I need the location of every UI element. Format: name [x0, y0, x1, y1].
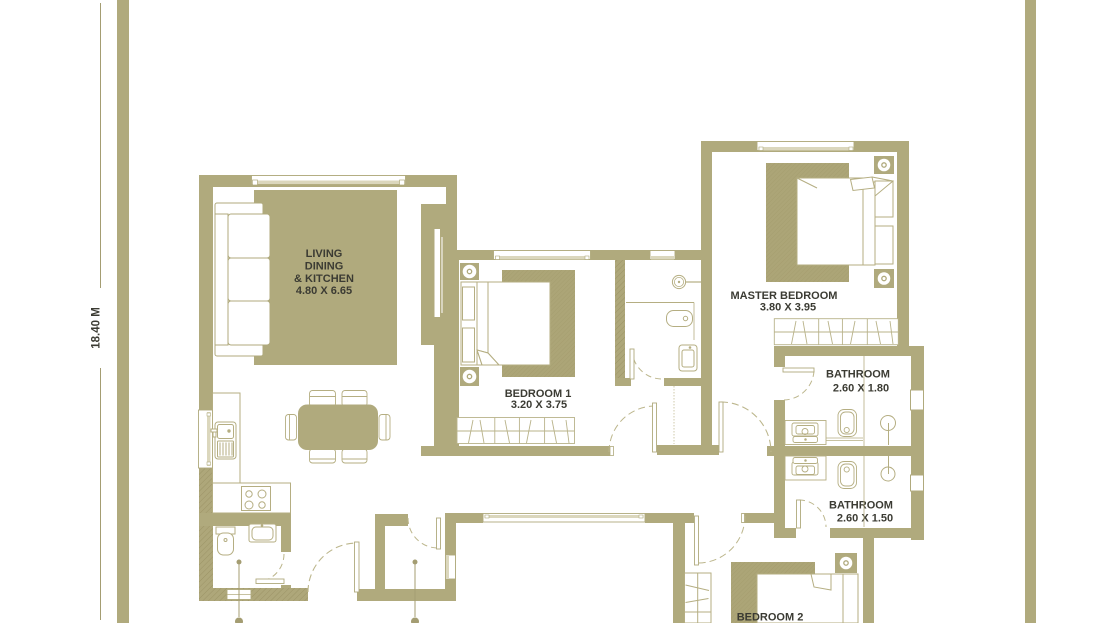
svg-text:BATHROOM: BATHROOM: [826, 369, 890, 381]
svg-text:4.80 X 6.65: 4.80 X 6.65: [296, 285, 352, 297]
svg-text:BATHROOM: BATHROOM: [829, 500, 893, 512]
svg-text:2.60 X 1.50: 2.60 X 1.50: [837, 513, 893, 525]
svg-text:MASTER BEDROOM: MASTER BEDROOM: [731, 290, 838, 302]
svg-text:18.40 M: 18.40 M: [91, 307, 103, 349]
svg-text:& KITCHEN: & KITCHEN: [294, 273, 354, 285]
svg-text:3.20 X 3.75: 3.20 X 3.75: [511, 399, 567, 411]
svg-text:DINING: DINING: [305, 261, 344, 273]
svg-text:3.80 X 3.95: 3.80 X 3.95: [760, 302, 816, 314]
svg-text:2.60 X 1.80: 2.60 X 1.80: [833, 383, 889, 395]
svg-text:BEDROOM 2: BEDROOM 2: [737, 612, 804, 623]
svg-text:LIVING: LIVING: [306, 248, 343, 260]
